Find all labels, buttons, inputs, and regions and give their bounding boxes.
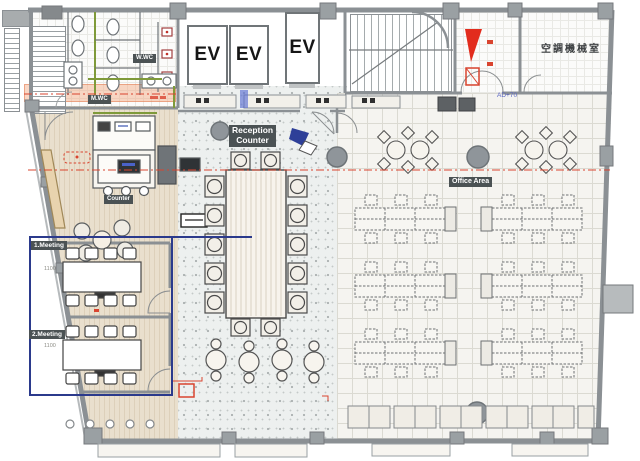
office-area-badge: Office Area: [449, 177, 492, 187]
office-desk-islands: [355, 195, 582, 377]
level-note-label: AD+70: [497, 92, 517, 99]
meeting-2-badge: 2.Meeting: [29, 330, 65, 339]
mens-wc-badge: M.WC: [88, 95, 111, 104]
womens-wc-badge: W.WC: [133, 54, 156, 63]
dimension-label-1: 1100: [44, 266, 56, 272]
counter-badge: Counter: [104, 195, 133, 204]
bottom-cabinets: [348, 406, 594, 428]
elevator-1-label: EV: [188, 26, 227, 84]
elevator-3-label: EV: [284, 13, 321, 83]
meeting-room-furniture: [63, 248, 170, 391]
ac-room-label: 空調機械室: [541, 40, 601, 55]
communal-table: [205, 152, 307, 336]
floor-plan: EV EV EV 空調機械室 Reception Counter Office …: [0, 0, 640, 461]
cafe-tables: [206, 339, 324, 383]
window-sills: [98, 444, 588, 457]
reception-line2: Counter: [232, 136, 273, 146]
staircase-details: [349, 12, 453, 84]
dimension-label-2: 1100: [44, 343, 56, 349]
reception-counter-badge: Reception Counter: [229, 125, 276, 147]
meeting-1-badge: 1.Meeting: [31, 241, 67, 250]
elevator-2-label: EV: [230, 26, 268, 84]
